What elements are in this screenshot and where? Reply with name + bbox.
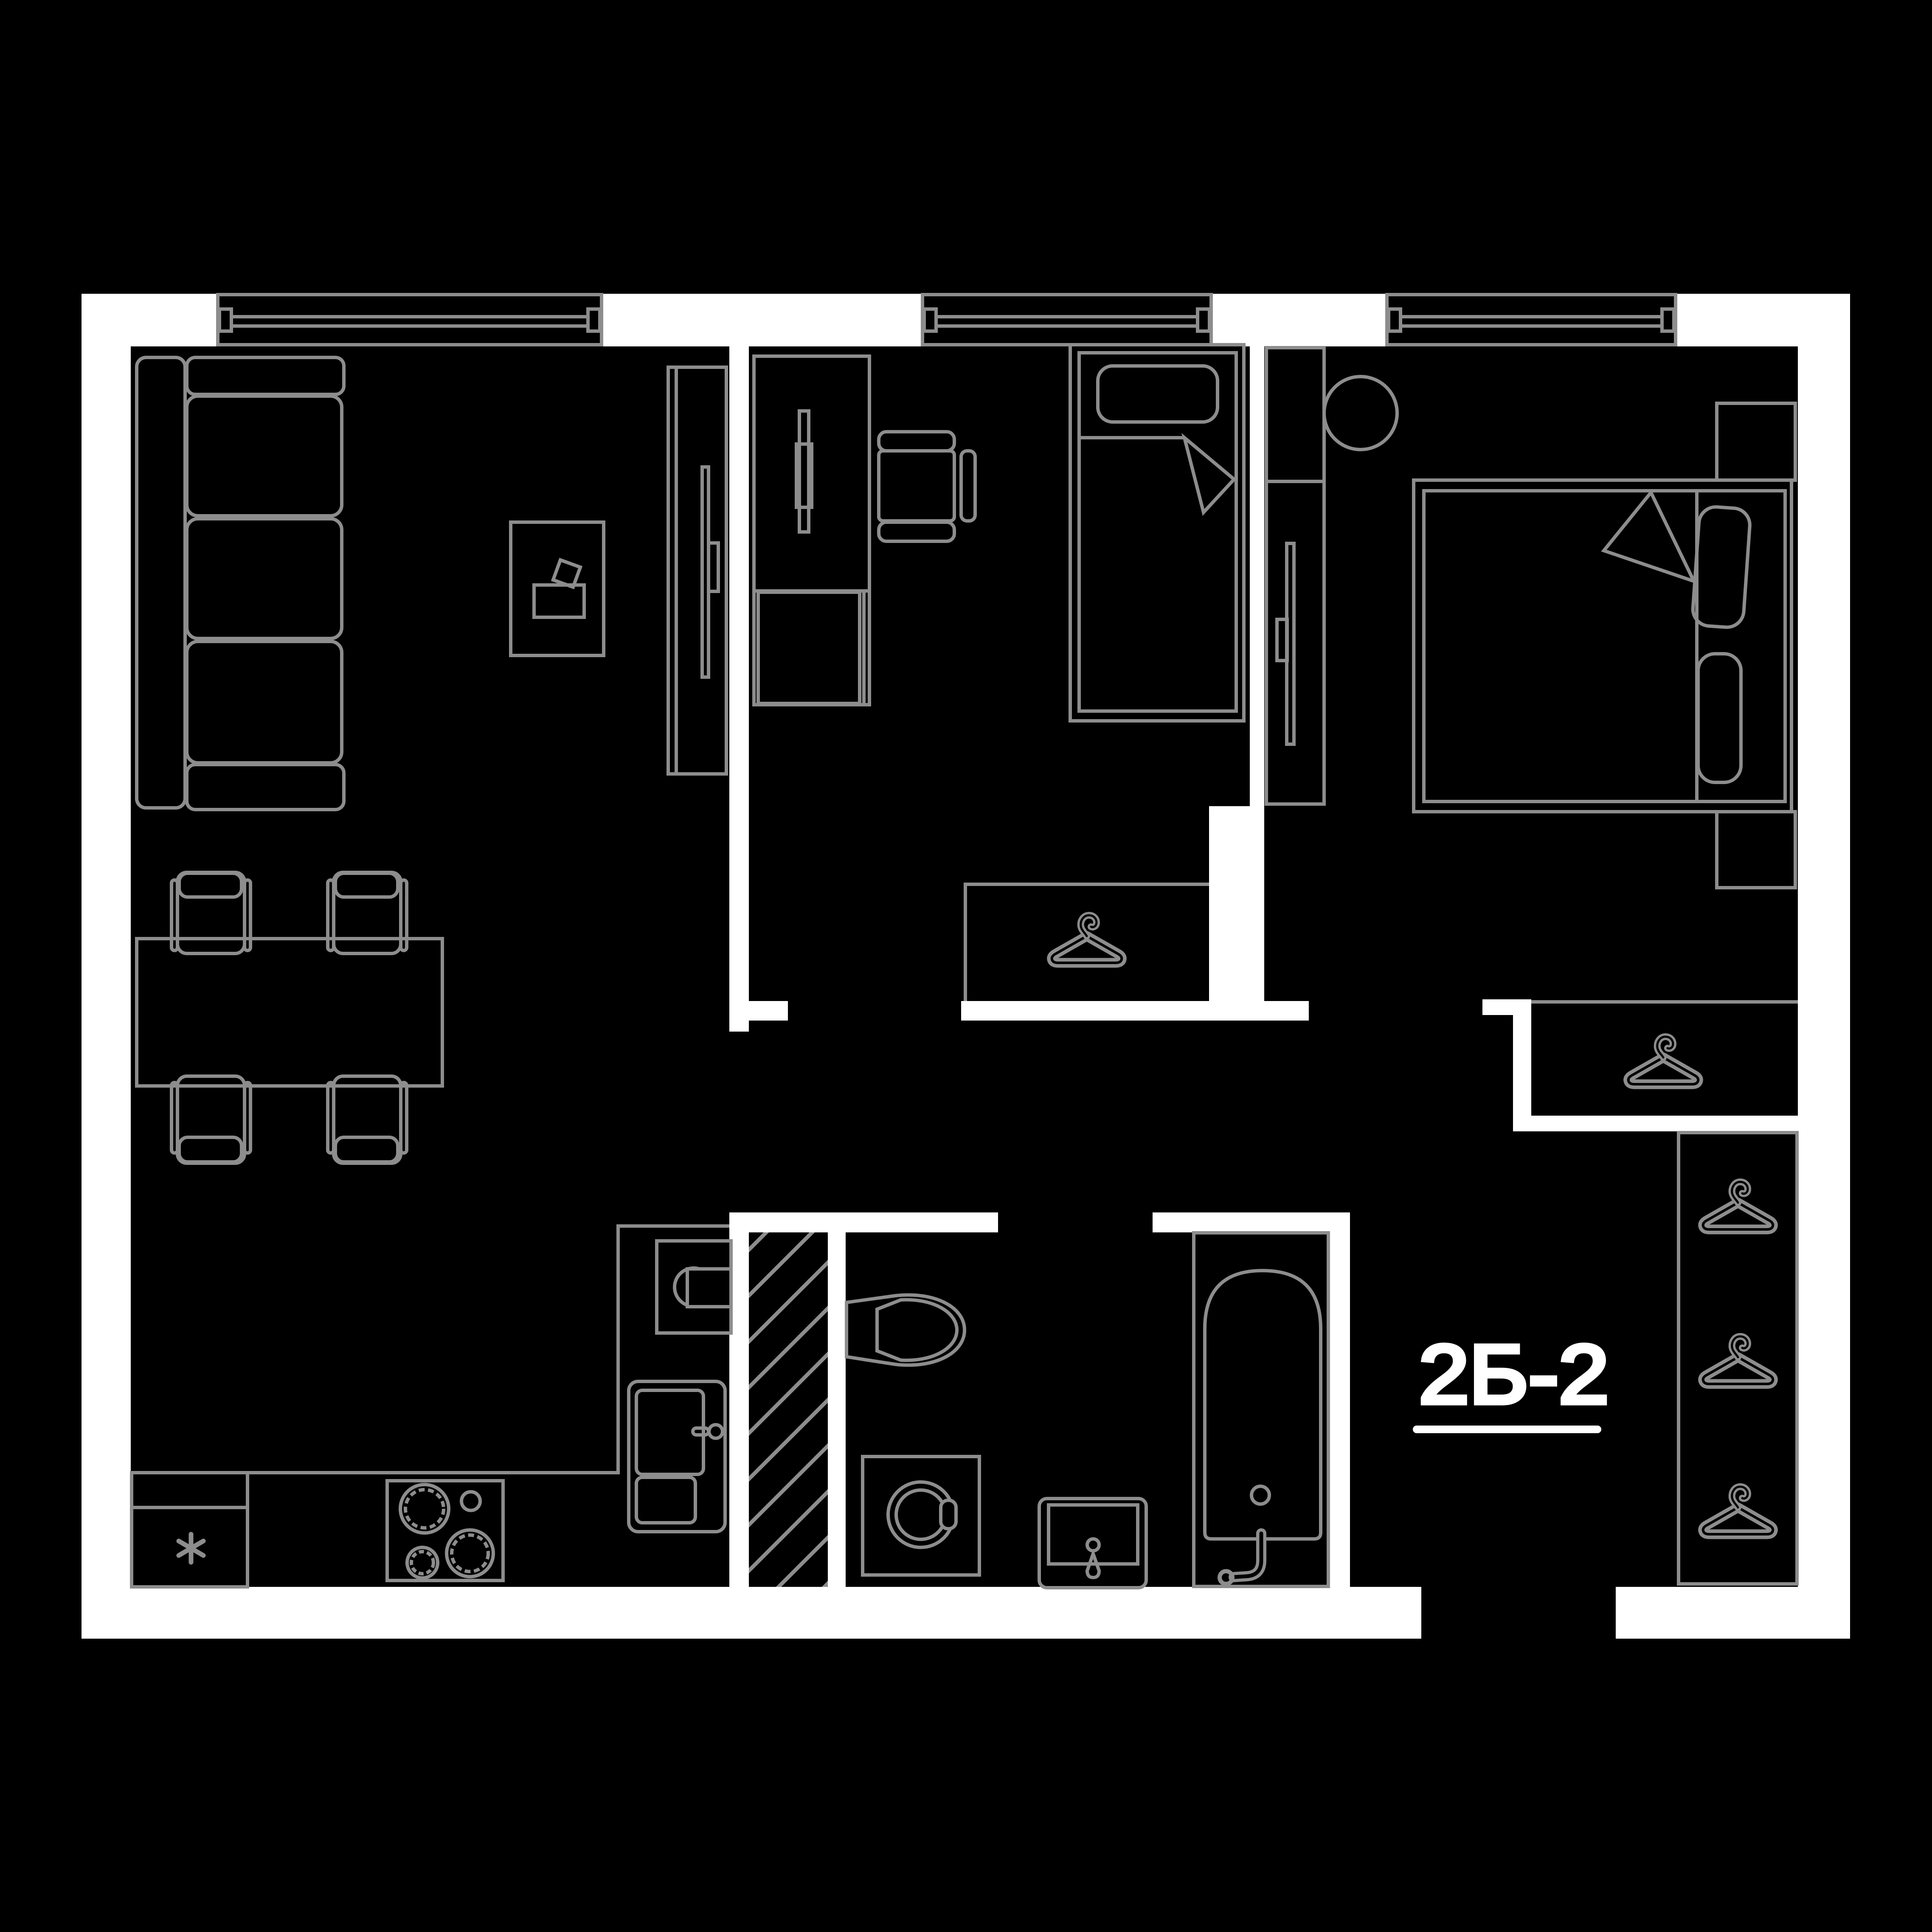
svg-text:2Б-2: 2Б-2 (1419, 1328, 1609, 1421)
